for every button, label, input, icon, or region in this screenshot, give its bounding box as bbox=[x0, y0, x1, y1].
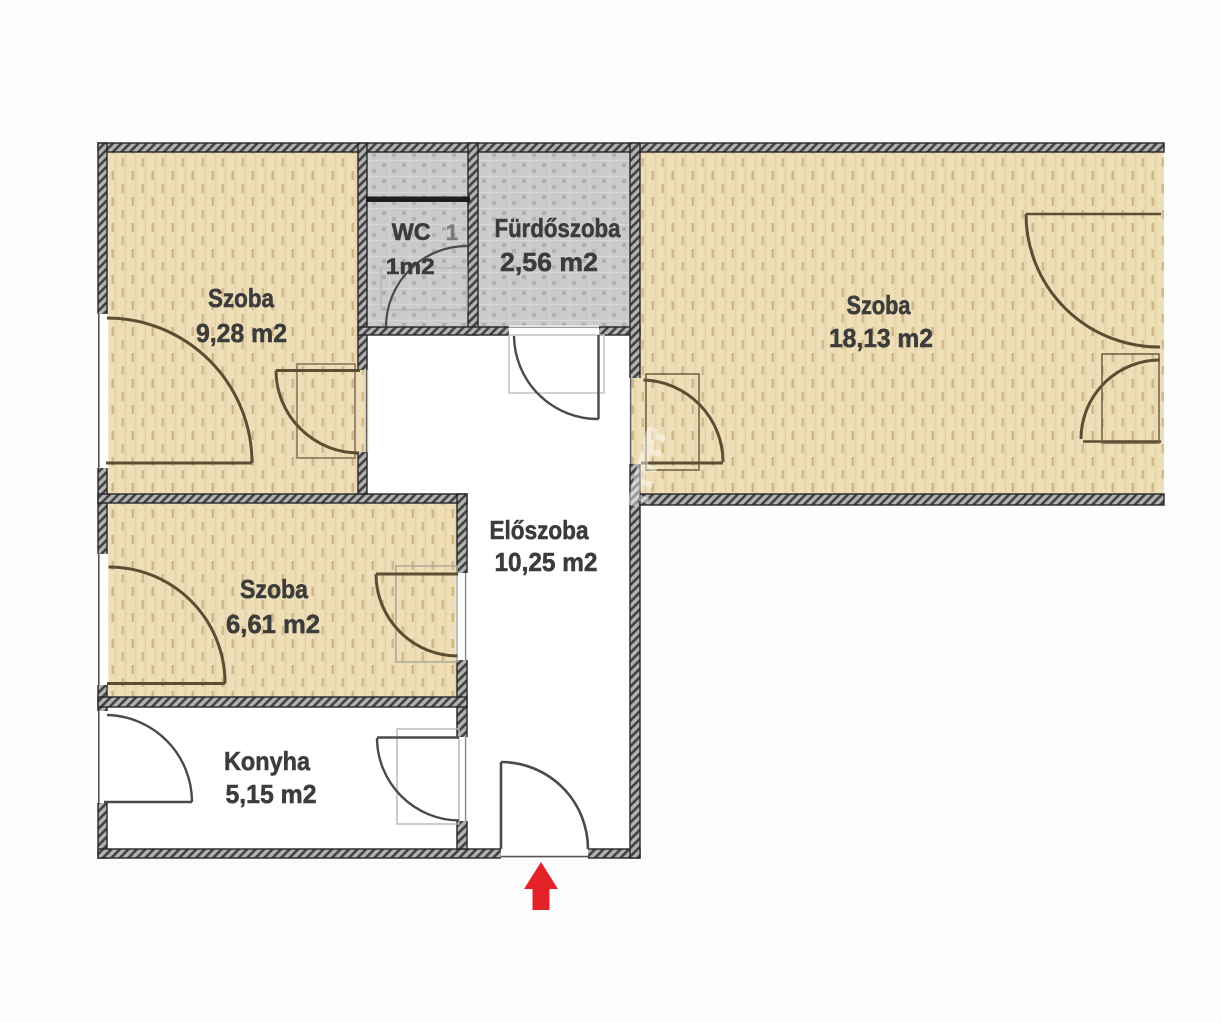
svg-text:1m2: 1m2 bbox=[386, 254, 435, 279]
svg-text:18,13 m2: 18,13 m2 bbox=[829, 323, 933, 353]
svg-text:Szoba: Szoba bbox=[847, 290, 911, 320]
svg-text:10,25 m2: 10,25 m2 bbox=[495, 547, 598, 577]
svg-text:Előszoba: Előszoba bbox=[490, 515, 589, 545]
svg-text:Szoba: Szoba bbox=[240, 574, 308, 604]
svg-text:9,28 m2: 9,28 m2 bbox=[196, 318, 287, 348]
svg-text:Konyha: Konyha bbox=[224, 746, 310, 776]
svg-text:5,15 m2: 5,15 m2 bbox=[226, 779, 317, 809]
svg-text:1: 1 bbox=[446, 220, 458, 245]
svg-text:WC: WC bbox=[392, 219, 431, 246]
svg-text:2,56 m2: 2,56 m2 bbox=[500, 247, 598, 277]
svg-text:Fürdőszoba: Fürdőszoba bbox=[495, 213, 621, 243]
svg-text:6,61 m2: 6,61 m2 bbox=[226, 609, 320, 639]
svg-text:Szoba: Szoba bbox=[208, 283, 274, 313]
